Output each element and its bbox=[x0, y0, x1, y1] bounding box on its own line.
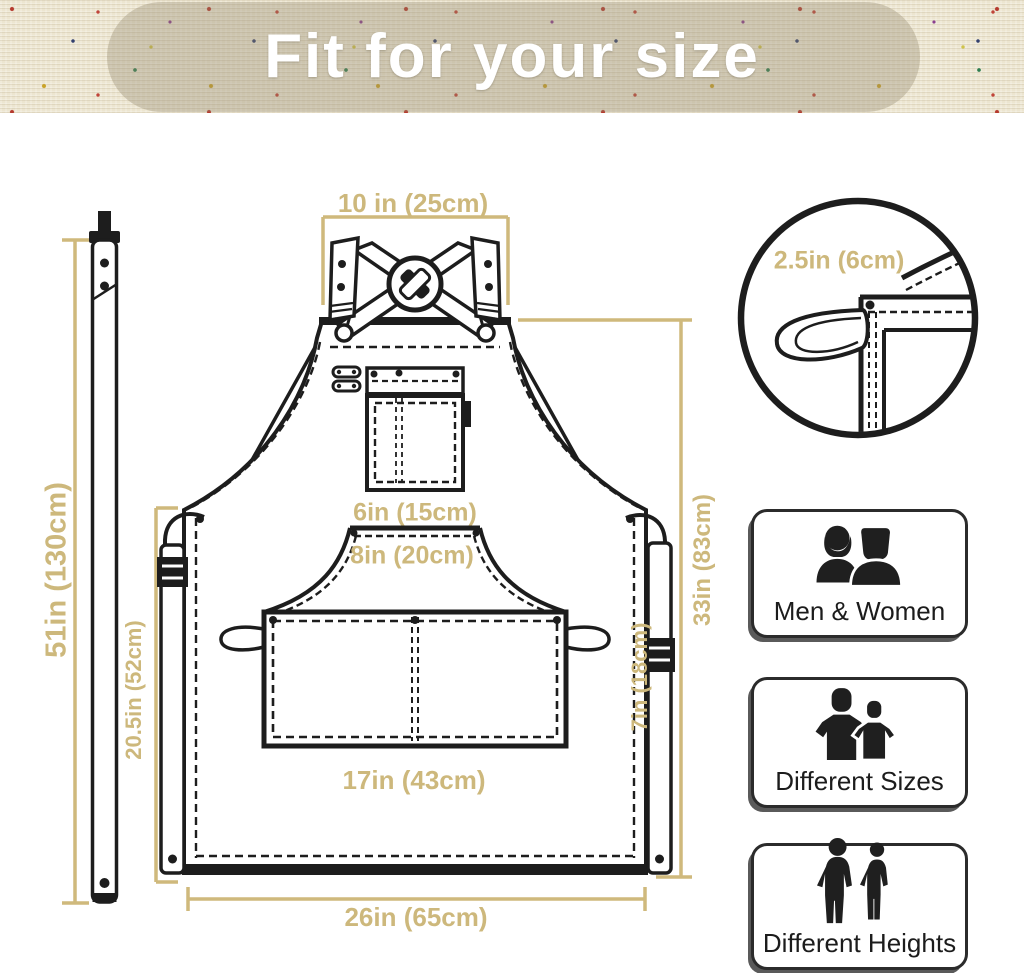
body-height-label: 33in (83cm) bbox=[691, 494, 715, 626]
pocket-width-label: 17in (43cm) bbox=[342, 767, 485, 793]
feature-label: Different Sizes bbox=[775, 766, 944, 797]
brand-tab bbox=[463, 401, 471, 427]
apron-diagram bbox=[0, 0, 1024, 973]
chest-pocket-width-label: 6in (15cm) bbox=[353, 501, 477, 526]
top-width-label: 10 in (25cm) bbox=[338, 190, 488, 216]
feature-card-men-women: Men & Women bbox=[751, 509, 968, 638]
skirt-height-label: 20.5in (52cm) bbox=[123, 620, 145, 759]
feature-card-different-sizes: Different Sizes bbox=[751, 677, 968, 808]
strap-length-label: 51in (130cm) bbox=[43, 482, 72, 658]
feature-card-different-heights: Different Heights bbox=[751, 843, 968, 970]
different-sizes-icon bbox=[808, 688, 912, 762]
waist-panel-width-label: 8in (20cm) bbox=[350, 544, 474, 569]
bottom-pocket bbox=[221, 612, 609, 746]
long-strap bbox=[89, 211, 120, 902]
pocket-height-label: 7in (18cm) bbox=[629, 623, 651, 732]
right-loop bbox=[566, 627, 609, 650]
loop-width-label: 2.5in (6cm) bbox=[774, 249, 905, 274]
left-loop bbox=[221, 627, 264, 650]
infographic: Fit for your size bbox=[0, 0, 1024, 973]
loop-detail-circle bbox=[741, 201, 978, 437]
different-heights-icon bbox=[810, 838, 910, 924]
feature-label: Men & Women bbox=[774, 596, 945, 627]
bottom-width-label: 26in (65cm) bbox=[344, 904, 487, 930]
men-women-icon bbox=[808, 520, 912, 592]
feature-label: Different Heights bbox=[763, 928, 956, 959]
